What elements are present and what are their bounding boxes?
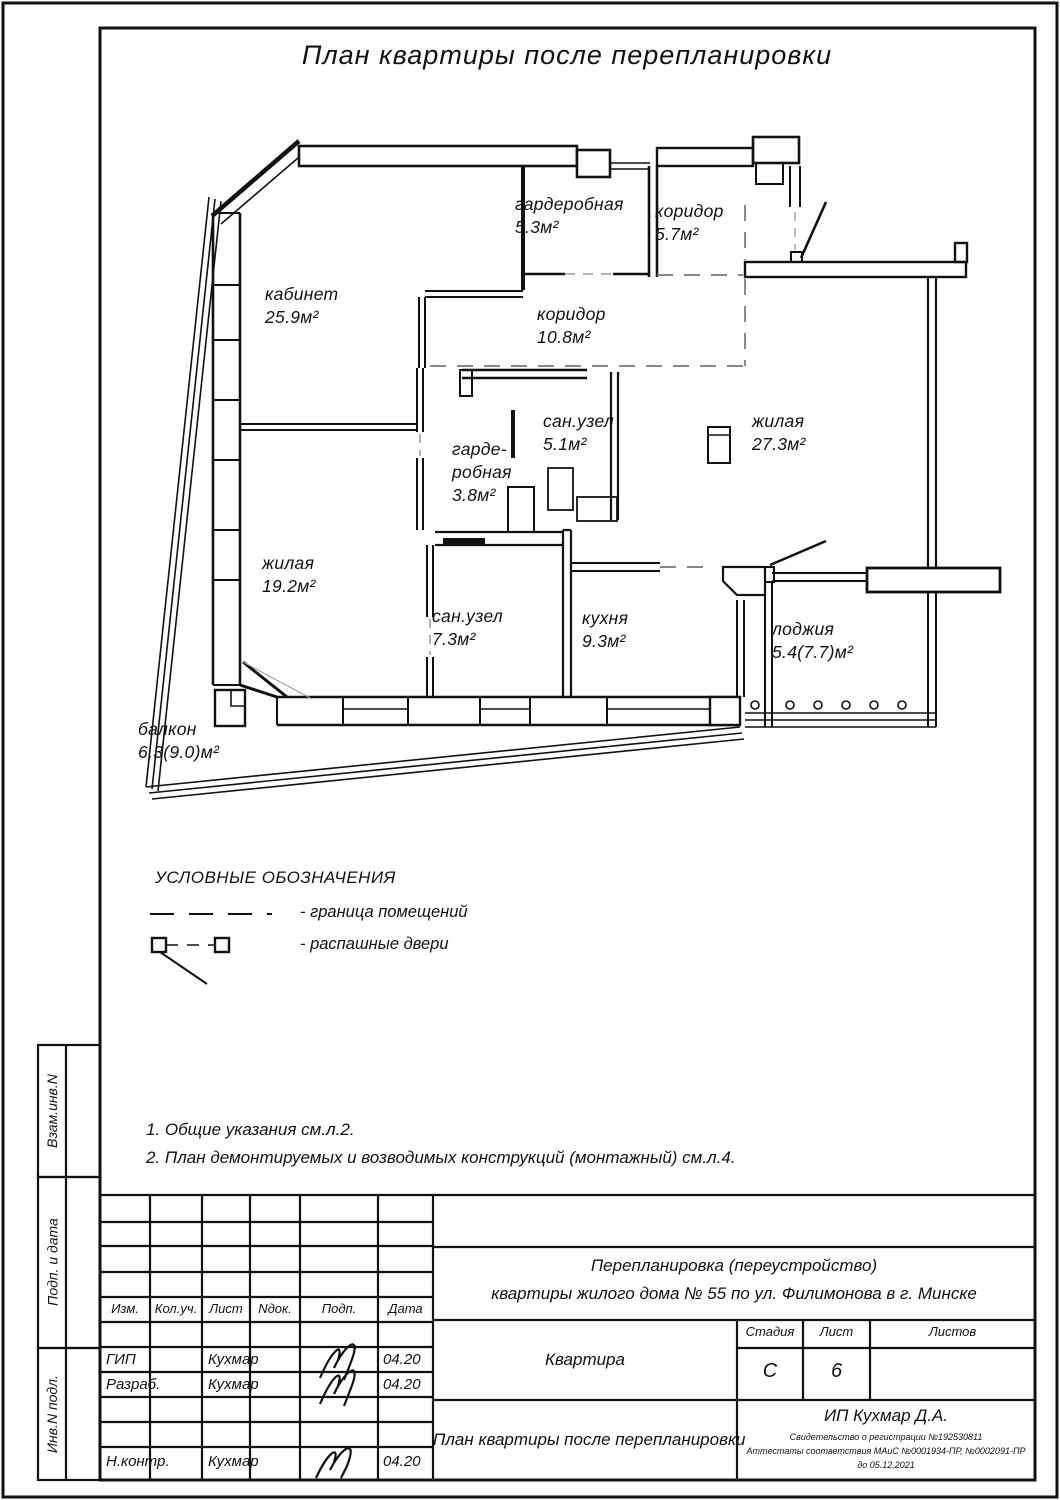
room-label-study: кабинет 25.9м² [265, 283, 420, 329]
legend-item-doors: - распашные двери [300, 935, 449, 954]
room-label-corridor-57: коридор 5.7м² [655, 200, 790, 246]
room-label-wardrobe-38: гарде- робная 3.8м² [452, 438, 572, 507]
note-2: 2. План демонтируемых и возводимых конст… [146, 1148, 736, 1168]
stamp-object-name: Квартира [433, 1350, 737, 1370]
page-title: План квартиры после перепланировки [200, 40, 934, 71]
stamp-sheet-label: Лист [803, 1324, 870, 1339]
stamp-cert-2: Аттестаты соответствия МАиС №0001934-ПР,… [737, 1445, 1035, 1458]
room-area: 19.2м² [262, 575, 412, 598]
signature-marks [316, 1344, 355, 1478]
stamp-date-razrab: 04.20 [383, 1376, 421, 1393]
stamp-col-list: Лист [202, 1301, 250, 1316]
stamp-role-razrab: Разраб. [106, 1376, 160, 1393]
legend-title: УСЛОВНЫЕ ОБОЗНАЧЕНИЯ [155, 868, 396, 888]
room-name: коридор [655, 200, 790, 223]
stamp-role-nkontr: Н.контр. [106, 1453, 170, 1470]
stamp-name-gip: Кухмар [208, 1351, 259, 1368]
legend-item-boundary: - граница помещений [300, 903, 468, 922]
stamp-date-nkontr: 04.20 [383, 1453, 421, 1470]
room-area: 7.3м² [432, 628, 572, 651]
room-name: кабинет [265, 283, 420, 306]
room-area: 5.7м² [655, 223, 790, 246]
stamp-name-razrab: Кухмар [208, 1376, 259, 1393]
side-label-vzam-inv: Взам.инв.N [38, 1045, 66, 1177]
room-label-balcony: балкон 6.3(9.0)м² [138, 718, 273, 764]
room-name-2: робная [452, 461, 572, 484]
stamp-sheets-label: Листов [870, 1324, 1035, 1339]
stamp-stage-value: С [737, 1360, 803, 1383]
stamp-sheet-title: План квартиры после перепланировки [433, 1430, 737, 1450]
legend-doors-symbol [152, 938, 229, 984]
room-name: сан.узел [432, 605, 572, 628]
room-area: 9.3м² [582, 630, 712, 653]
room-area: 10.8м² [537, 326, 687, 349]
room-label-living-273: жилая 27.3м² [752, 410, 892, 456]
note-1: 1. Общие указания см.л.2. [146, 1120, 355, 1140]
room-name: коридор [537, 303, 687, 326]
drawing-sheet: План квартиры после перепланировки гарде… [0, 0, 1060, 1500]
room-label-wardrobe-53: гардеробная 5.3м² [515, 193, 665, 239]
side-label-inv-podl: Инв.N подл. [38, 1348, 66, 1480]
stamp-company: ИП Кухмар Д.А. [737, 1406, 1035, 1426]
room-area: 27.3м² [752, 433, 892, 456]
stamp-name-nkontr: Кухмар [208, 1453, 259, 1470]
room-label-kitchen: кухня 9.3м² [582, 607, 712, 653]
stamp-stage-label: Стадия [737, 1324, 803, 1339]
stamp-role-gip: ГИП [106, 1351, 136, 1368]
room-name: кухня [582, 607, 712, 630]
room-area: 3.8м² [452, 484, 572, 507]
room-area: 5.3м² [515, 216, 665, 239]
room-name: жилая [262, 552, 412, 575]
room-name: гардеробная [515, 193, 665, 216]
room-name: гарде- [452, 438, 572, 461]
stamp-col-izm: Изм. [100, 1301, 150, 1316]
stamp-sheet-value: 6 [803, 1360, 870, 1383]
room-label-corridor-108: коридор 10.8м² [537, 303, 687, 349]
stamp-project-line1: Перепланировка (переустройство) [433, 1256, 1035, 1276]
stamp-cert-1: Свидетельство о регистрации №192530811 [737, 1431, 1035, 1444]
room-name: жилая [752, 410, 892, 433]
room-name: лоджия [772, 618, 922, 641]
room-label-bathroom-73: сан.узел 7.3м² [432, 605, 572, 651]
stamp-col-ndok: Nдок. [250, 1301, 300, 1316]
side-label-podp-data: Подп. и дата [39, 1177, 67, 1348]
stamp-col-data: Дата [378, 1301, 433, 1316]
stamp-date-gip: 04.20 [383, 1351, 421, 1368]
stamp-col-koluch: Кол.уч. [150, 1301, 202, 1316]
stamp-project-line2: квартиры жилого дома № 55 по ул. Филимон… [433, 1284, 1035, 1304]
room-label-loggia: лоджия 5.4(7.7)м² [772, 618, 922, 664]
stamp-cert-3: до 05.12.2021 [737, 1459, 1035, 1472]
stamp-col-podp: Подп. [300, 1301, 378, 1316]
room-label-living-192: жилая 19.2м² [262, 552, 412, 598]
room-name: балкон [138, 718, 273, 741]
room-area: 5.4(7.7)м² [772, 641, 922, 664]
room-area: 6.3(9.0)м² [138, 741, 273, 764]
room-name: сан.узел [543, 410, 673, 433]
room-area: 25.9м² [265, 306, 420, 329]
